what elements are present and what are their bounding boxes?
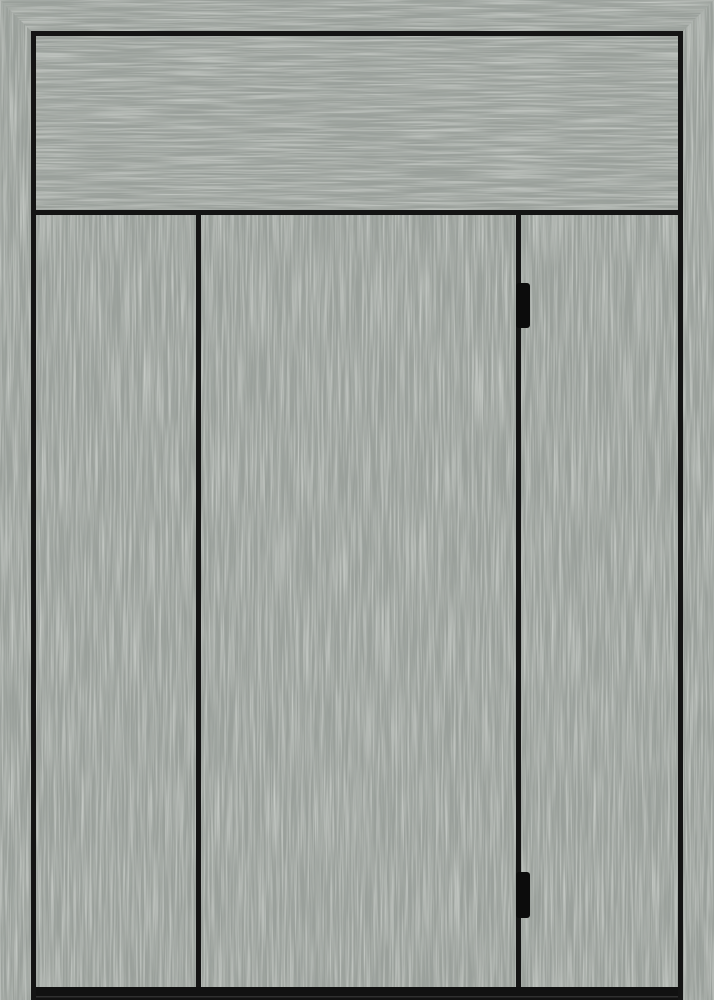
door-render-canvas [0,0,714,1000]
transom-panel [36,36,678,210]
panel-divider-left [196,215,201,987]
left-frame-line [31,31,36,1000]
bottom-highlight-seam [36,996,678,998]
frame-right-stile [683,0,714,1000]
hinge-top [516,283,530,328]
transom-divider-line [31,210,683,215]
door-render-svg [0,0,714,1000]
frame-top-rail [0,0,714,31]
panel-divider-right [516,215,521,987]
door-panels [36,215,678,987]
frame-left-stile [0,0,31,1000]
hinge-bottom [516,872,530,918]
top-frame-line [31,31,683,36]
right-frame-line [678,31,683,1000]
bottom-kick-bar [36,987,678,1000]
